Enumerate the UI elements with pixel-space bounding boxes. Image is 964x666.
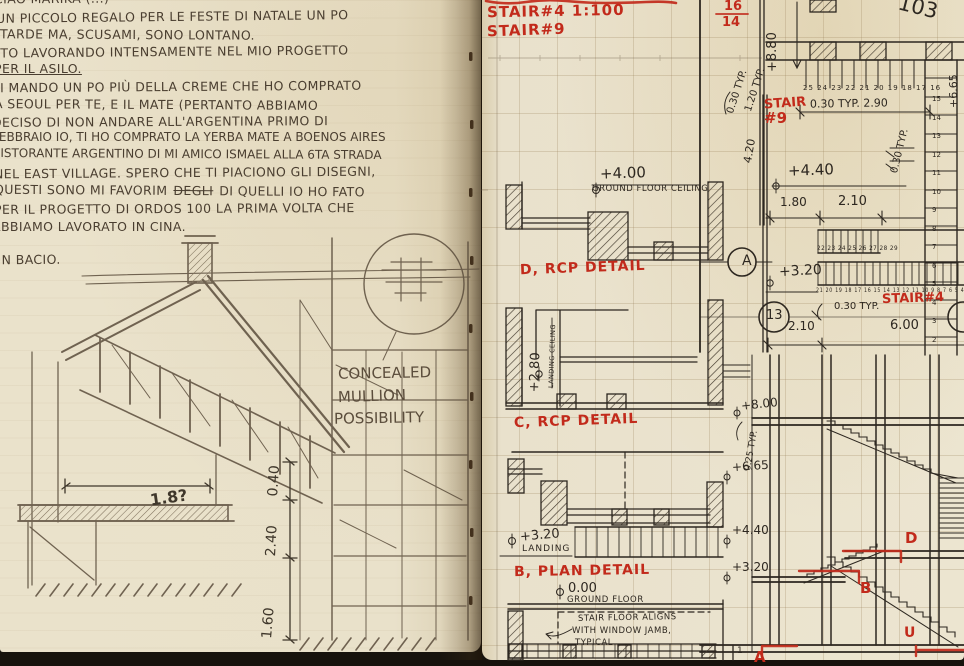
bubble-note-line-1: CONCEALED — [338, 365, 431, 382]
grid-bubble-13: 13 — [766, 309, 783, 323]
bubble-note-line-2: MULLION — [338, 388, 407, 406]
level-320-plan: +3.20 — [779, 263, 823, 280]
left-sketch-section — [18, 234, 479, 650]
tread-numbers-mid-run: 22 23 24 25 26 27 28 29 — [817, 245, 898, 252]
section-mark-a: A — [754, 650, 766, 666]
level-320-b: +3.20 — [732, 561, 769, 574]
level-280-rot: +2.80 — [528, 352, 543, 392]
label-b-plan-detail: B, PLAN DETAIL — [514, 563, 650, 580]
letter-line-5: PER IL ASILO. — [0, 61, 82, 76]
dim-030-290: 0.30 TYP. 2.90 — [810, 97, 888, 110]
level-880-vertical: +8.80 — [766, 32, 780, 72]
letter-line-12-strike: DEGLI — [173, 183, 213, 198]
sketch-dim-mid: 2.40 — [264, 525, 280, 557]
letter-line-15: UN BACIO. — [0, 252, 61, 268]
letter-line-3: TARDE MA, SCUSAMI, SONO LONTANO. — [0, 26, 255, 42]
stair9-label-line-2: #9 — [764, 111, 787, 127]
bubble-note-line-3: POSSIBILITY — [334, 410, 424, 427]
level-665-b: +6.65 — [732, 459, 770, 474]
dim-210-a: 2.10 — [838, 195, 867, 209]
letter-line-1: CIAO MARIKA (...) — [0, 0, 109, 6]
section-mark-u: U — [904, 626, 915, 641]
dim-210-b: 2.10 — [788, 320, 815, 333]
sheet-fraction-top: 16 — [724, 0, 742, 14]
letter-line-10: RISTORANTE ARGENTINO DI MI AMICO ISMAEL … — [0, 146, 382, 162]
notebook-spread: CIAO MARIKA (...) UN PICCOLO REGALO PER … — [0, 0, 964, 666]
level-440-plan: +4.40 — [788, 162, 834, 179]
note-line-2: WITH WINDOW JAMB, — [572, 627, 671, 636]
letter-line-12-post: DI QUELLI IO HO FATO — [219, 183, 365, 199]
level-400-sub: GROUND FLOOR CEILING — [592, 185, 708, 194]
note-line-1: STAIR FLOOR ALIGNS — [578, 613, 677, 624]
level-665-vertical: +6.65 — [948, 74, 960, 108]
letter-line-9: FEBBRAIO IO, TI HO COMPRATO LA YERBA MAT… — [0, 130, 386, 144]
letter-line-13: PER IL PROGETTO DI ORDOS 100 LA PRIMA VO… — [0, 200, 355, 217]
dim-600: 6.00 — [890, 319, 919, 333]
level-440-b: +4.40 — [732, 524, 769, 537]
sketch-dim-top: 0.40 — [266, 465, 283, 497]
dim-180: 1.80 — [780, 196, 807, 209]
section-mark-d: D — [905, 531, 917, 547]
tread-numbers-right-column: 15 14 13 12 11 10 9 8 7 6 5 4 3 2 — [932, 90, 941, 349]
letter-line-12: QUESTI SONO MI FAVORIMDEGLIDI QUELLI IO … — [0, 182, 365, 200]
letter-line-11: NEL EAST VILLAGE. SPERO CHE TI PIACIONO … — [0, 164, 376, 182]
level-400: +4.00 — [600, 165, 646, 182]
letter-line-4: STO LAVORANDO INTENSAMENTE NEL MIO PROGE… — [0, 42, 349, 60]
level-000: 0.00 — [568, 582, 597, 596]
stair4-label: STAIR#4 — [882, 291, 945, 307]
binding-stitches — [469, 52, 474, 605]
sheet-fraction-bottom: 14 — [722, 16, 740, 30]
grid-mark-1: 1 — [737, 647, 743, 656]
sheet-title-line-2: STAIR#9 — [487, 22, 566, 40]
letter-line-12-pre: QUESTI SONO MI FAVORIM — [0, 182, 167, 198]
letter-line-7: A SEOUL PER TE, E IL MATE (PERTANTO ABBI… — [0, 96, 318, 113]
level-320-landing-sub: LANDING — [522, 545, 570, 554]
sketch-dim-bottom: 1.60 — [260, 607, 277, 639]
letter-line-8: DECISO DI NON ANDARE ALL'ARGENTINA PRIMO… — [0, 113, 328, 130]
letter-line-6: TI MANDO UN PO PIÙ DELLA CREME CHE HO CO… — [0, 78, 362, 96]
section-mark-b: B — [860, 581, 871, 597]
dim-030-typ-c: 0.30 TYP. — [834, 302, 879, 313]
tread-numbers-plan-top: 25 24 23 22 21 20 19 18 17 16 — [803, 85, 941, 92]
sheet-title-line-1: STAIR#4 1:100 — [487, 3, 625, 21]
detail-b-plan — [500, 407, 742, 584]
section-bubble-a: A — [742, 254, 752, 269]
letter-line-14: ABBIAMO LAVORATO IN CINA. — [0, 219, 186, 234]
note-line-3: TYPICAL — [575, 639, 613, 648]
level-000-sub: GROUND FLOOR — [567, 596, 644, 605]
